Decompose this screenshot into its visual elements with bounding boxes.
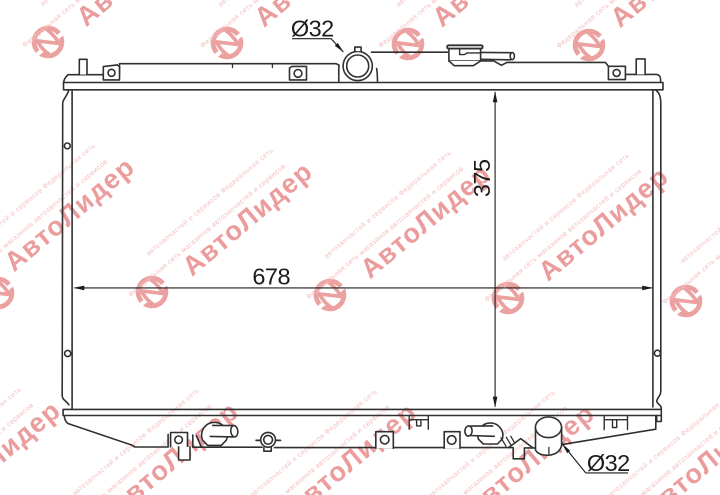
svg-text:375: 375 <box>469 159 495 197</box>
svg-text:Ø32: Ø32 <box>291 15 334 41</box>
svg-text:678: 678 <box>252 263 290 289</box>
svg-text:Ø32: Ø32 <box>587 450 630 476</box>
